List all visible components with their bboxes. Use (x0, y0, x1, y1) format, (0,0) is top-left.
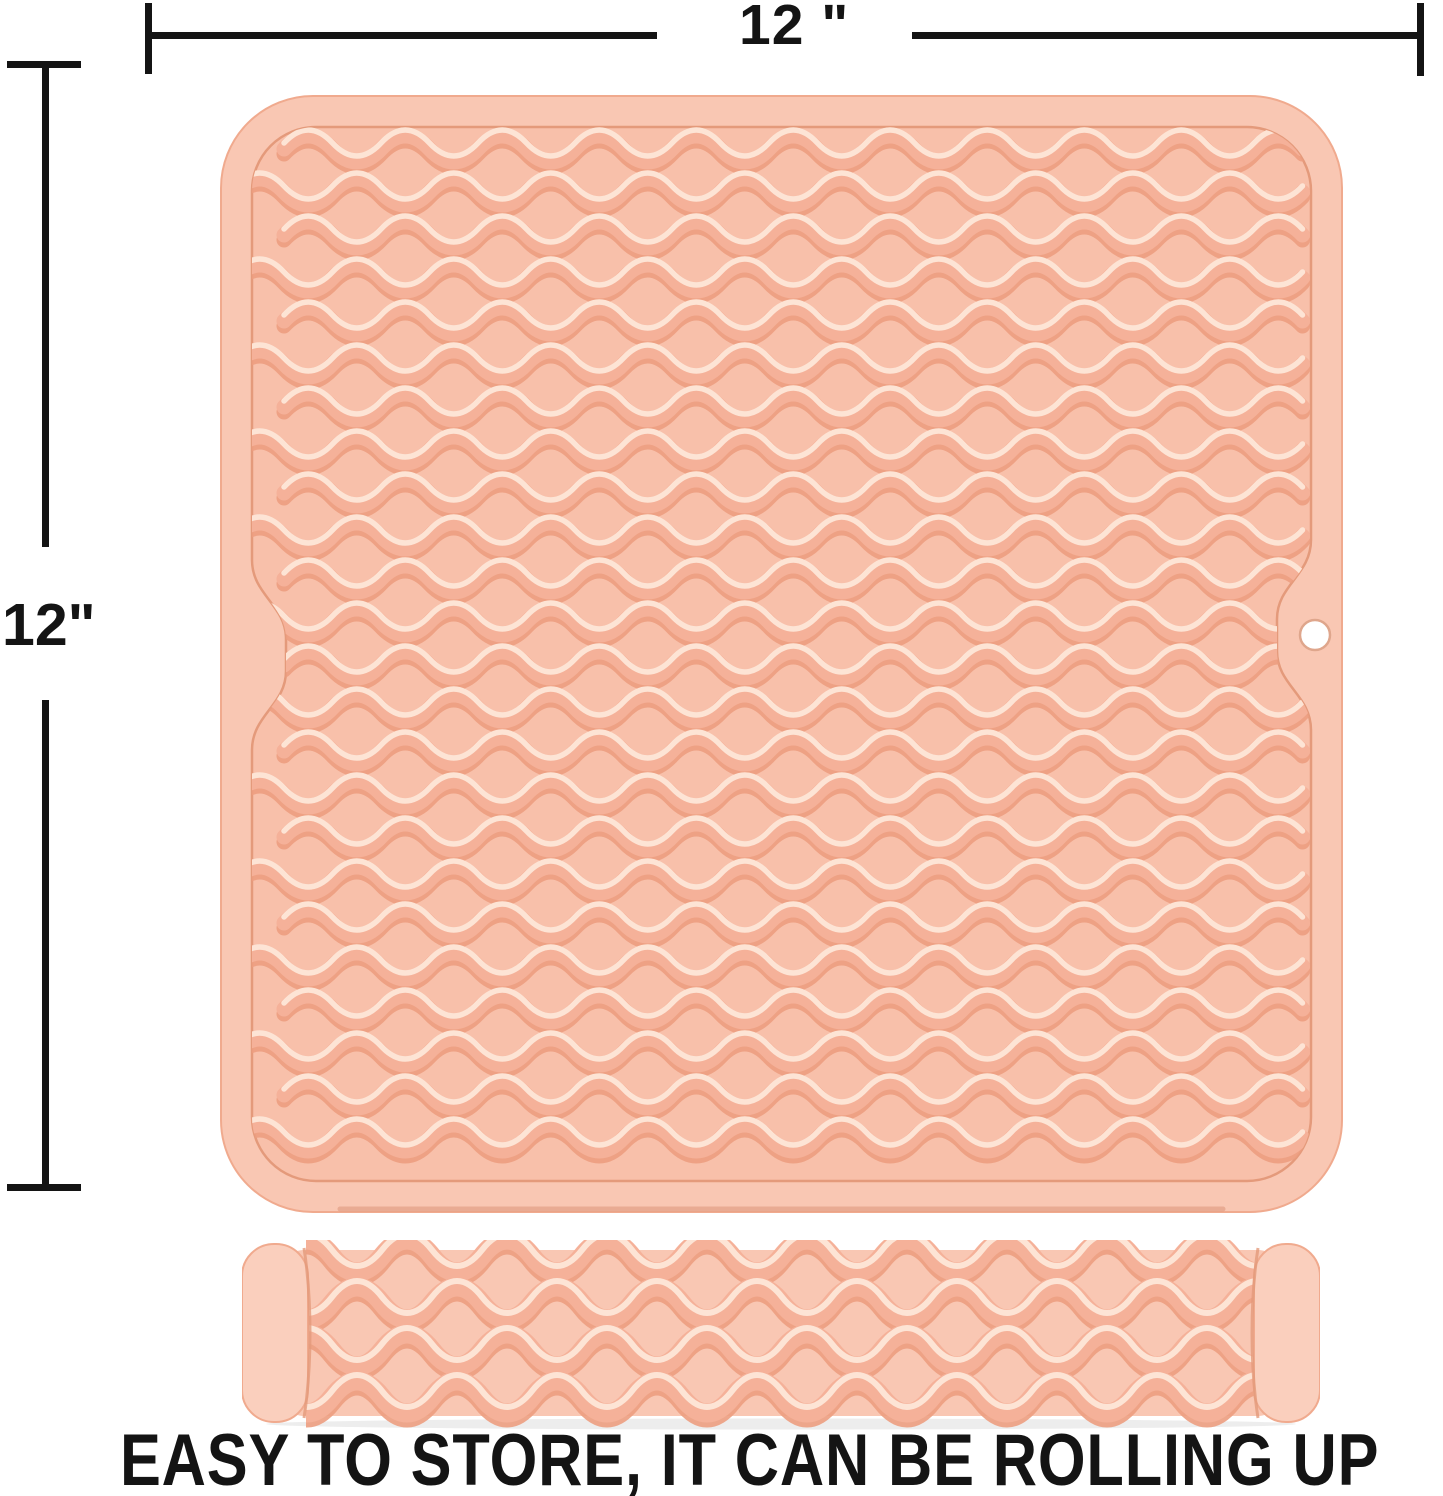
roll-cap-right (1254, 1244, 1320, 1422)
dimension-line-bottom-segment (42, 700, 49, 1187)
left-height-label: 12" (2, 591, 96, 659)
hanging-hole (1300, 620, 1330, 650)
top-width-label: 12 " (739, 0, 849, 58)
caption-text: EASY TO STORE, IT CAN BE ROLLING UP (120, 1424, 1379, 1496)
rolled-mat (242, 1240, 1320, 1432)
dimension-tick-right (1417, 3, 1424, 76)
dimension-line-left-segment (148, 32, 657, 39)
drying-mat (220, 95, 1343, 1213)
dimension-line-top-segment (42, 64, 49, 547)
caption: EASY TO STORE, IT CAN BE ROLLING UP (0, 1424, 1443, 1496)
dimension-line-right-segment (912, 32, 1421, 39)
roll-cap-left (242, 1244, 308, 1422)
product-image: 12 " 12" EASY TO STORE, IT (0, 0, 1443, 1496)
